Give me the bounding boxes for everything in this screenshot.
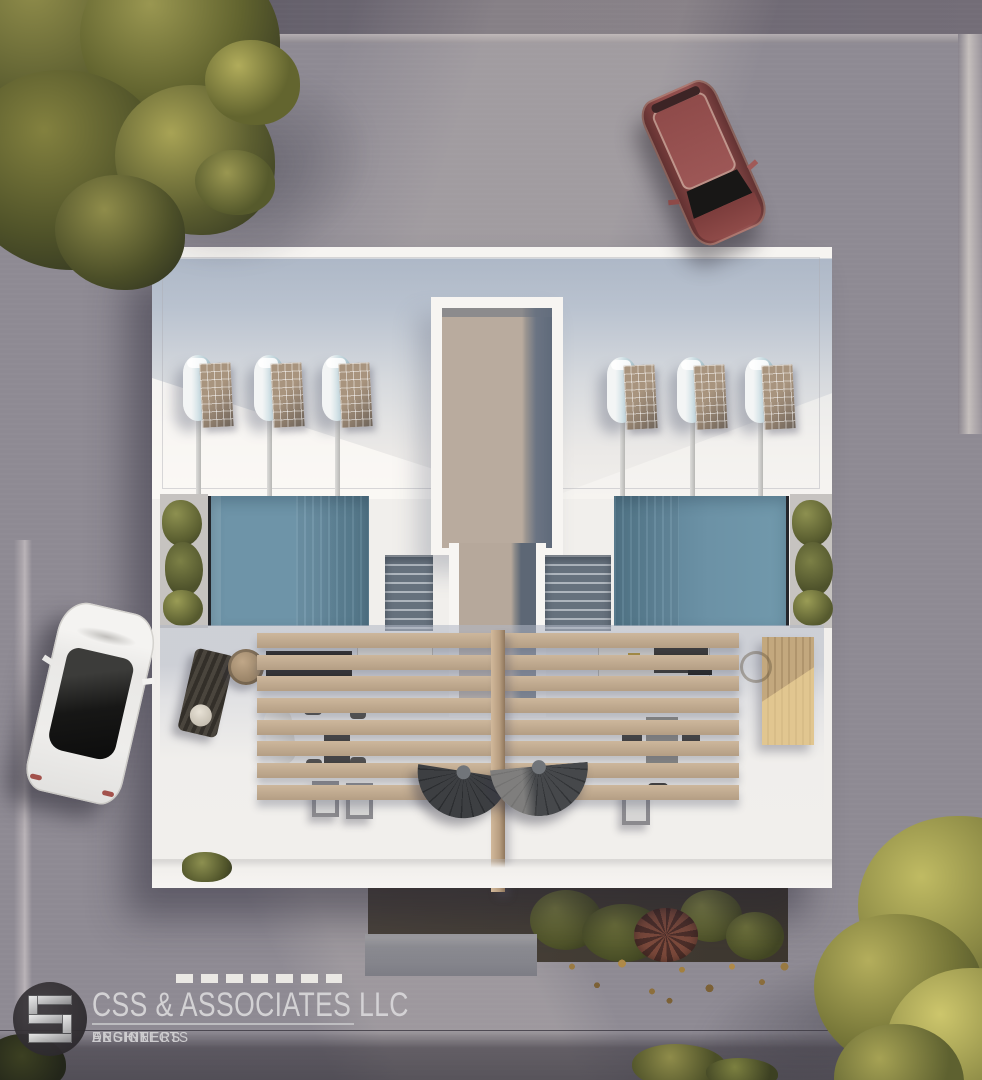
planter-shrub [162,500,202,546]
planter-shrub [165,542,203,596]
central-core-upper [431,297,563,555]
planter-shrub [793,590,833,626]
wood-deck [762,637,814,745]
villa-building [152,247,832,888]
heater-pipe [690,421,695,501]
solar-water-heater [677,357,743,507]
s-monogram-icon [28,995,72,1043]
planter-shrub [795,542,833,596]
planter-shrub [792,500,832,546]
central-core-roof [442,308,552,548]
party-wall-beam [491,630,505,892]
heater-pipe [335,419,340,499]
solar-panel [338,362,372,428]
round-side-table [740,651,772,683]
corner-shrub [182,852,232,882]
foliage-clump [205,40,300,125]
solar-panel [199,362,233,428]
solar-water-heater [183,355,249,505]
plunge-pool-right [614,496,786,626]
heater-pipe [758,421,763,501]
glass-pool-fence-right [786,496,789,626]
plunge-pool-left [211,496,369,626]
solar-panel [270,362,304,428]
company-name: CSS & ASSOCIATES LLC [92,986,420,1024]
company-tagline: ARCHITECTS ENGINEERS DESIGNERS [92,1029,470,1047]
aerial-render-scene: CSS & ASSOCIATES LLC ARCHITECTS ENGINEER… [0,0,982,1080]
heater-pipe [267,419,272,499]
logo-segment [28,1033,72,1043]
heater-pipe [196,419,201,499]
foliage-clump [55,175,185,290]
heater-pipe [620,421,625,501]
building-fascia [152,859,832,888]
pool-planter-left [160,494,208,628]
solar-panel [623,364,657,430]
tagline-word: DESIGNERS [92,1029,181,1046]
solar-panel [761,364,795,430]
solar-water-heater [322,355,388,505]
solar-water-heater [745,357,811,507]
planter-shrub [163,590,203,626]
foliage-clump [195,150,275,215]
stairwell-right [545,555,611,631]
solar-water-heater [607,357,673,507]
curb-markings [176,974,342,983]
entry-step [365,934,537,976]
pool-planter-right [790,494,832,628]
company-logo-badge [13,982,87,1056]
tree-canopy-top-left [0,0,320,300]
stairwell-left [385,555,433,631]
solar-panel [693,364,727,430]
solar-water-heater [254,355,320,505]
tree-canopy-bottom-right [820,828,982,1080]
company-name-underline [92,1023,354,1025]
